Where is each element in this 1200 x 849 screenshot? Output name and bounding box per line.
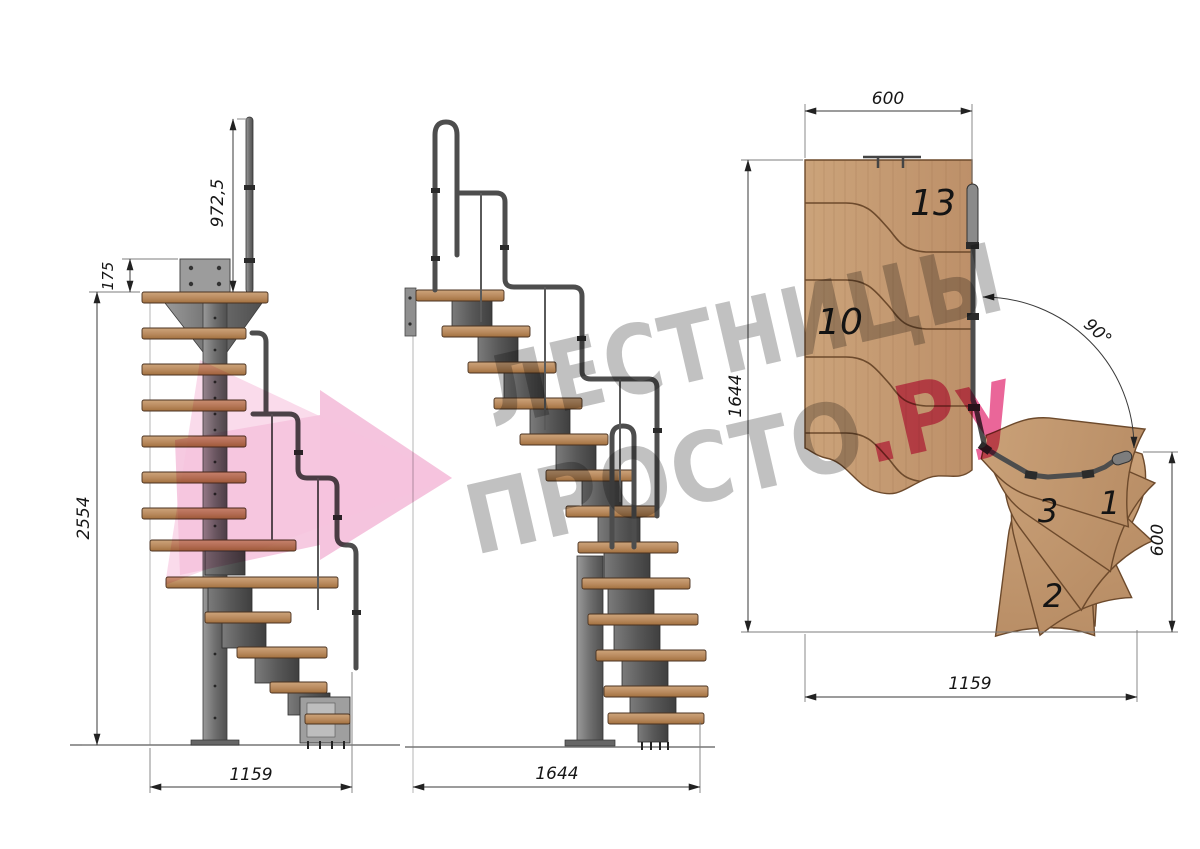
watermark: ЛЕСТНИЦЫ ПРОСТО.Ру: [165, 222, 1026, 585]
tread: [270, 682, 327, 693]
dim-bottom-length: 1159: [805, 630, 1137, 702]
step-label-13: 13: [910, 183, 956, 224]
tread: [237, 647, 327, 658]
wall-bracket: [405, 288, 416, 336]
step-label-2: 2: [1043, 577, 1063, 615]
dim-label: 600: [872, 89, 904, 109]
dim-label: 600: [1148, 524, 1168, 556]
post-collar: [244, 258, 255, 263]
dim-label: 972,5: [208, 179, 228, 228]
drawing-canvas: 2554 175 972,5 1159: [0, 0, 1200, 849]
dim-label: 1159: [948, 674, 991, 694]
wall-plate: [180, 259, 230, 292]
technical-drawing: 2554 175 972,5 1159: [0, 0, 1200, 849]
step-label-3: 3: [1038, 492, 1058, 530]
dim-bracket-plate: 175: [99, 259, 178, 292]
watermark-arrow-logo: [165, 360, 452, 585]
bracket-bolt: [408, 296, 411, 299]
step-module: [255, 658, 299, 683]
tread: [305, 714, 350, 724]
post-collar: [244, 185, 255, 190]
column-base-plate: [565, 740, 615, 746]
dim-label: 2554: [74, 496, 94, 539]
dim-label: 90°: [1079, 315, 1115, 350]
tread: [142, 292, 268, 303]
step-module: [208, 588, 252, 613]
dim-label: 1644: [535, 764, 578, 784]
tread: [142, 364, 246, 375]
dim-label: 1159: [229, 765, 272, 785]
tread: [142, 328, 246, 339]
anchor-bolts: [642, 742, 668, 750]
dim-exit-width: 600: [1143, 452, 1178, 632]
handrail-post: [246, 117, 253, 293]
bracket-bolt: [408, 322, 411, 325]
dim-total-height: 2554: [74, 292, 140, 745]
tread: [205, 612, 291, 623]
step-module: [222, 623, 266, 648]
dim-label: 175: [99, 262, 117, 291]
column-base-plate: [191, 740, 239, 745]
tread: [166, 577, 338, 588]
step-label-1: 1: [1100, 484, 1120, 522]
